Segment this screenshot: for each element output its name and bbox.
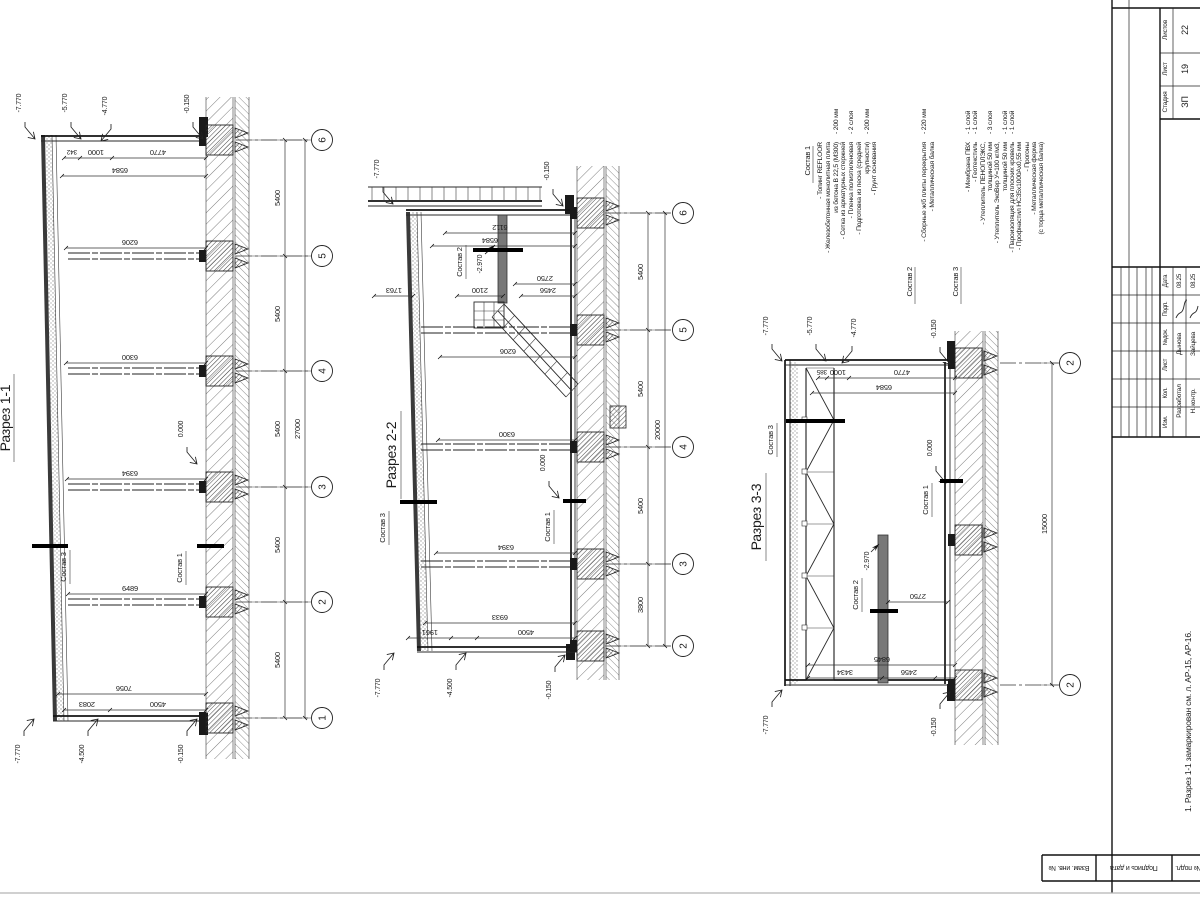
axis-bubble-label: 5: [679, 327, 690, 333]
stamp-label: Лист: [1163, 358, 1169, 371]
chain-dim-label: 5400: [273, 190, 282, 206]
legend-value: - 1 слой: [1008, 110, 1016, 134]
dim-label: 6845: [874, 655, 890, 664]
dim-label: 6394: [498, 543, 514, 552]
dim-label: 4500: [518, 628, 534, 637]
elevation-label: -7.770: [763, 316, 770, 335]
sections-drawing: Разрез 1-1540054005400540054002700065432…: [0, 0, 1200, 900]
legend-item: - Грунт основания: [871, 141, 878, 195]
dim-label: 6584: [112, 166, 128, 175]
legend-item: - Подготовка из песка (средней: [855, 142, 863, 235]
axis-bubble-label: 2: [318, 599, 329, 605]
total-dim-label: 20000: [653, 420, 662, 440]
axis-bubble-label: 1: [318, 715, 329, 721]
dim-label: 1961: [422, 628, 438, 637]
chain-dim-label: 3800: [636, 597, 645, 613]
stamp-value: 19: [1180, 64, 1190, 74]
composition-ref-label: Состав 2: [851, 580, 860, 610]
dim-label: 1000: [830, 368, 846, 377]
stamp-value: 08.25: [1191, 273, 1197, 288]
elevation-label: -2.970: [477, 254, 484, 273]
dim-label: 4500: [150, 700, 166, 709]
dim-label: 7056: [116, 684, 132, 693]
legend-item: - Железобетонная монолитная плита: [824, 142, 832, 253]
elevation-label: -0.150: [178, 744, 185, 763]
legend-title: Состав 3: [951, 267, 960, 297]
legend-item: - Геотекстиль: [972, 141, 979, 182]
axis-bubble-label: 4: [318, 368, 329, 374]
dim-label: 385: [816, 368, 827, 375]
legend-item: толщиной 50 мм: [986, 141, 994, 191]
elevation-label: -2.970: [864, 551, 871, 570]
legend-item: - Сетка из арматурных стержней: [839, 142, 847, 240]
axis-bubble-label: 3: [318, 484, 329, 490]
elevation-label: 0.000: [927, 439, 934, 456]
dim-label: 4770: [894, 368, 910, 377]
composition-ref-label: Состав 1: [543, 512, 552, 542]
elevation-label: -5.770: [807, 316, 814, 335]
dim-label: 6112: [492, 223, 507, 232]
legend-value: - 200 мм: [864, 108, 871, 134]
legend-title: Состав 2: [905, 267, 914, 297]
legend-item: из бетона В 22,5 (М300): [832, 142, 840, 213]
axis-bubbles: [312, 130, 333, 729]
stamp-label: Лист: [1162, 62, 1169, 76]
dim-label: 6933: [492, 613, 508, 622]
dim-label: 2100: [472, 286, 488, 295]
elevation-label: -5.770: [62, 93, 69, 112]
axis-bubble-label: 4: [679, 444, 690, 450]
composition-ref-label: Состав 2: [455, 247, 464, 277]
section-1-1: [14, 97, 333, 759]
legend-value: - 1 слой: [971, 110, 979, 134]
dim-label: 2456: [540, 286, 556, 295]
legend-item: - Пароизоляция для плоских кровель: [1009, 141, 1016, 252]
stamp-value: Разработал: [1175, 384, 1183, 418]
total-dim-label: 15000: [1040, 514, 1049, 534]
stamp-label: №док.: [1162, 328, 1169, 345]
dim-label: 6206: [500, 347, 516, 356]
chain-dim-label: 5400: [636, 381, 645, 397]
dim-label: 6394: [122, 469, 138, 478]
legend-value: - 200 мм: [833, 108, 840, 134]
dim-label: 3434: [837, 668, 853, 677]
section-title: Разрез 1-1: [0, 384, 13, 451]
composition-ref-label: Состав 3: [378, 513, 387, 543]
legend-item: - Металлическая ферма: [1031, 142, 1038, 215]
composition-ref-label: Состав 3: [59, 552, 68, 582]
elevation-label: -4.500: [79, 744, 86, 763]
dim-label: 1763: [386, 286, 402, 295]
dim-label: 6300: [499, 430, 515, 439]
dim-label: 342: [66, 148, 77, 155]
stamp-value: Дынова: [1176, 332, 1183, 355]
legend-value: - 220 мм: [921, 108, 928, 134]
chain-dim-label: 5400: [636, 264, 645, 280]
stamp-value: Н. контр.: [1190, 388, 1197, 413]
elevation-label: -7.770: [763, 715, 770, 734]
chain-dim-label: 5400: [273, 306, 282, 322]
chain-dim-label: 5400: [636, 498, 645, 514]
total-dim-label: 27000: [293, 419, 302, 439]
dim-label: 4770: [150, 148, 166, 157]
chain-dim-label: 5400: [273, 421, 282, 437]
legend-item: - Утеплитель ЭкоВер У=100 кг/м3,: [994, 142, 1001, 244]
dim-label: 2456: [901, 668, 917, 677]
axis-bubbles: [1060, 353, 1081, 696]
stamp-label: Листов: [1162, 19, 1169, 40]
note-text: 1. Разрез 1-1 замаркирован см. л. АР-15,…: [1183, 631, 1193, 812]
axis-bubbles: [673, 203, 694, 657]
drawing-sheet: Разрез 1-1540054005400540054002700065432…: [0, 0, 1200, 900]
legend-value: - 1 слой: [1001, 110, 1009, 134]
stamp-label: Кол.: [1163, 387, 1169, 399]
elevation-label: -0.150: [931, 319, 938, 338]
composition-ref-label: Состав 3: [766, 425, 775, 455]
elevation-label: -7.770: [15, 744, 22, 763]
axis-bubble-label: 6: [318, 137, 329, 143]
legend-value: - 3 слоя: [987, 110, 994, 134]
elevation-label: -0.150: [544, 161, 551, 180]
axis-bubble-label: 2: [1066, 360, 1077, 366]
legend-item: - Мембрана ПВХ: [964, 141, 972, 192]
dim-label: 6584: [876, 383, 892, 392]
stamp-label: Дата: [1163, 274, 1169, 287]
margin-box-label: Взам. инв. №: [1049, 864, 1090, 871]
legend-item: - Профнастил НС35х1000Ах0,55 мм: [1016, 141, 1023, 250]
signature-icon: [1176, 299, 1198, 318]
stamp-label: Подп.: [1163, 301, 1169, 316]
elevation-label: 0.000: [540, 454, 547, 471]
stamp-value: Зайцева: [1189, 331, 1197, 356]
elevation-label: -4.770: [102, 96, 109, 115]
legend-item: толщиной 50 мм: [1001, 141, 1009, 191]
legend-item: - Металлическая балка: [928, 142, 936, 212]
dim-label: 2750: [910, 592, 926, 601]
dim-label: 2750: [537, 274, 553, 283]
legend-item: - Утеплитель ПЕНОПЛЭКС,: [980, 142, 987, 225]
legend-value: - 1 слой: [964, 110, 972, 134]
chain-dim-label: 5400: [273, 652, 282, 668]
elevation-label: -7.770: [375, 678, 382, 697]
elevation-label: -7.770: [16, 93, 23, 112]
legend-item: - Топинг REFLOOR: [817, 142, 824, 199]
legend-title: Состав 1: [803, 146, 812, 176]
section-3-3: [766, 331, 1081, 745]
section-title: Разрез 2-2: [383, 421, 399, 488]
dim-label: 6584: [482, 236, 498, 245]
legend-item: (с торца металлическая балка): [1037, 142, 1045, 235]
dim-label: 6300: [122, 353, 138, 362]
dim-label: 6206: [122, 238, 138, 247]
composition-ref-label: Состав 1: [175, 553, 184, 583]
stamp-value: 22: [1180, 25, 1190, 35]
margin-box-label: Подпись и дата: [1110, 864, 1158, 871]
section-title: Разрез 3-3: [748, 483, 764, 550]
legend-item: - Пленка полиэтиленовая: [848, 141, 855, 218]
elevation-label: -0.150: [184, 94, 191, 113]
dim-label: 6489: [122, 584, 138, 593]
axis-bubble-label: 6: [679, 210, 690, 216]
elevation-label: -7.770: [374, 159, 381, 178]
elevation-label: -0.150: [546, 680, 553, 699]
stamp-value: 08.25: [1177, 273, 1183, 288]
legend-value: - 2 слоя: [848, 110, 855, 134]
axis-bubble-label: 2: [679, 643, 690, 649]
elevation-label: -4.770: [851, 318, 858, 337]
margin-box-label: Инв. № подл.: [1175, 864, 1200, 871]
axis-bubble-label: 5: [318, 253, 329, 259]
elevation-label: 0.000: [178, 420, 185, 437]
legend-item: - Сборные ж/б плиты перекрытия: [920, 141, 928, 241]
composition-ref-label: Состав 1: [921, 485, 930, 515]
elevation-label: -4.500: [447, 678, 454, 697]
stamp-value: ЗП: [1180, 96, 1190, 108]
elevation-label: -0.150: [931, 717, 938, 736]
legend-item: - Прогоны: [1024, 142, 1031, 172]
chain-dim-label: 5400: [273, 537, 282, 553]
dim-label: 1000: [88, 148, 104, 157]
axis-bubble-label: 3: [679, 561, 690, 567]
stamp-label: Стадия: [1162, 91, 1169, 113]
dim-label: 2083: [79, 700, 95, 709]
stamp-label: Изм.: [1163, 415, 1169, 428]
axis-bubble-label: 2: [1066, 682, 1077, 688]
legend-item: крупности): [864, 142, 871, 174]
